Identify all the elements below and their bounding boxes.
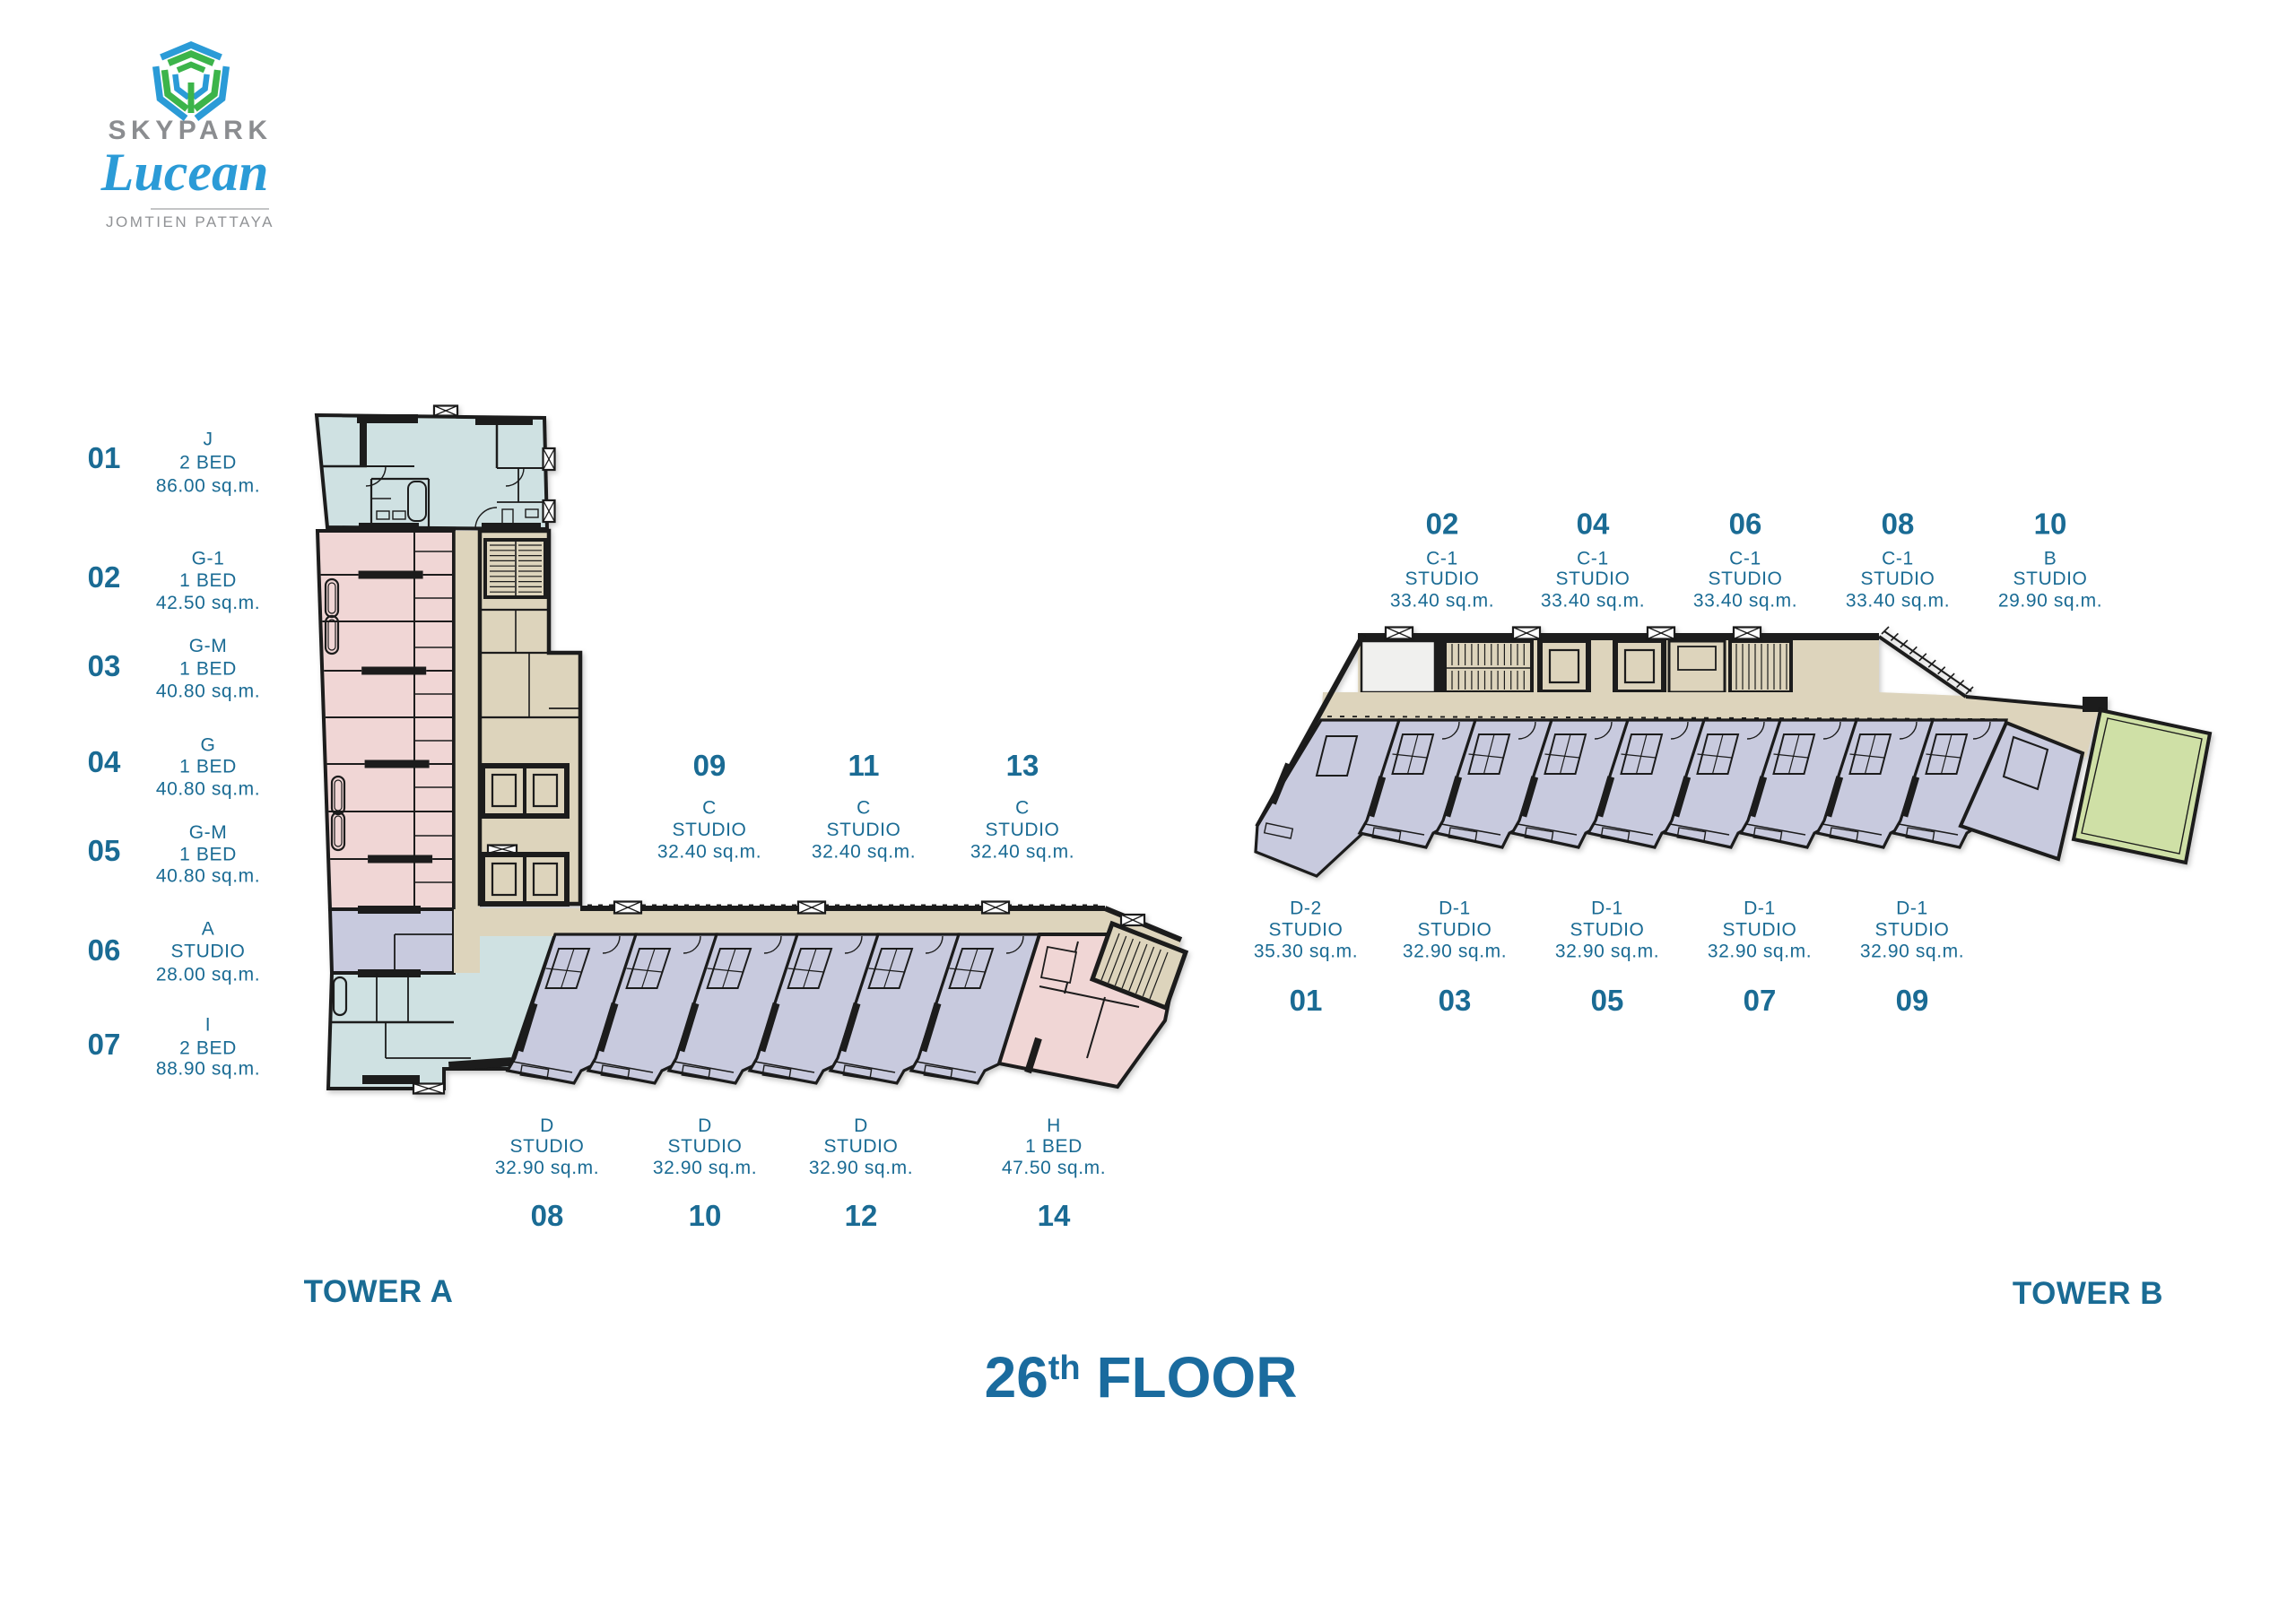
svg-text:I: I	[205, 1015, 211, 1036]
svg-text:86.00 sq.m.: 86.00 sq.m.	[156, 476, 260, 497]
svg-text:STUDIO: STUDIO	[1570, 920, 1645, 941]
svg-text:STUDIO: STUDIO	[1418, 920, 1492, 941]
svg-text:32.90 sq.m.: 32.90 sq.m.	[1708, 942, 1812, 962]
svg-text:10: 10	[689, 1199, 722, 1232]
svg-text:STUDIO: STUDIO	[1875, 920, 1950, 941]
svg-text:10: 10	[2034, 508, 2067, 541]
svg-text:07: 07	[1744, 984, 1777, 1017]
svg-text:07: 07	[88, 1028, 121, 1061]
svg-text:03: 03	[88, 649, 121, 682]
svg-text:STUDIO: STUDIO	[1861, 568, 1935, 589]
svg-text:STUDIO: STUDIO	[1269, 920, 1344, 941]
svg-text:02: 02	[1426, 508, 1459, 541]
svg-text:33.40 sq.m.: 33.40 sq.m.	[1846, 591, 1950, 612]
svg-text:13: 13	[1006, 749, 1039, 782]
svg-text:32.90 sq.m.: 32.90 sq.m.	[1403, 942, 1507, 962]
svg-text:JOMTIEN PATTAYA: JOMTIEN PATTAYA	[106, 213, 274, 230]
svg-text:C-1: C-1	[1882, 549, 1914, 569]
svg-text:1 BED: 1 BED	[179, 845, 237, 865]
svg-text:D: D	[540, 1115, 554, 1136]
svg-text:G: G	[201, 735, 216, 756]
svg-text:C-1: C-1	[1426, 549, 1458, 569]
svg-text:J: J	[203, 430, 213, 450]
svg-text:40.80 sq.m.: 40.80 sq.m.	[156, 866, 260, 887]
svg-text:40.80 sq.m.: 40.80 sq.m.	[156, 681, 260, 702]
svg-text:06: 06	[88, 933, 121, 967]
svg-text:2 BED: 2 BED	[179, 1038, 237, 1059]
svg-text:STUDIO: STUDIO	[827, 820, 901, 840]
svg-text:32.90 sq.m.: 32.90 sq.m.	[495, 1158, 599, 1178]
svg-text:SKYPARK: SKYPARK	[109, 116, 273, 145]
svg-text:88.90 sq.m.: 88.90 sq.m.	[156, 1059, 260, 1080]
svg-text:40.80 sq.m.: 40.80 sq.m.	[156, 779, 260, 800]
svg-text:09: 09	[1896, 984, 1929, 1017]
svg-text:47.50 sq.m.: 47.50 sq.m.	[1002, 1158, 1106, 1178]
svg-text:29.90 sq.m.: 29.90 sq.m.	[1998, 591, 2102, 612]
svg-text:G-M: G-M	[189, 636, 228, 656]
svg-text:B: B	[2044, 549, 2057, 569]
svg-text:D-1: D-1	[1439, 898, 1471, 919]
svg-text:42.50 sq.m.: 42.50 sq.m.	[156, 593, 260, 613]
svg-text:08: 08	[531, 1199, 564, 1232]
svg-text:C: C	[1015, 798, 1030, 819]
svg-text:D: D	[854, 1115, 868, 1136]
svg-text:H: H	[1047, 1115, 1061, 1136]
svg-text:1 BED: 1 BED	[179, 658, 237, 679]
svg-text:STUDIO: STUDIO	[986, 820, 1060, 840]
svg-text:STUDIO: STUDIO	[1405, 568, 1480, 589]
svg-text:2 BED: 2 BED	[179, 453, 237, 473]
svg-text:D-1: D-1	[1591, 898, 1623, 919]
svg-text:G-M: G-M	[189, 822, 228, 843]
svg-text:32.40 sq.m.: 32.40 sq.m.	[812, 841, 916, 862]
svg-text:32.90 sq.m.: 32.90 sq.m.	[653, 1158, 757, 1178]
svg-text:C: C	[702, 798, 717, 819]
svg-text:D-2: D-2	[1290, 898, 1322, 919]
svg-text:STUDIO: STUDIO	[668, 1136, 743, 1157]
svg-text:STUDIO: STUDIO	[1723, 920, 1797, 941]
svg-text:C: C	[857, 798, 871, 819]
svg-text:32.90 sq.m.: 32.90 sq.m.	[809, 1158, 913, 1178]
svg-text:STUDIO: STUDIO	[1556, 568, 1631, 589]
svg-text:STUDIO: STUDIO	[673, 820, 747, 840]
svg-text:08: 08	[1882, 508, 1915, 541]
svg-text:32.40 sq.m.: 32.40 sq.m.	[657, 841, 761, 862]
svg-text:11: 11	[848, 749, 880, 782]
svg-text:TOWER A: TOWER A	[304, 1274, 454, 1309]
svg-text:1 BED: 1 BED	[179, 757, 237, 777]
svg-text:STUDIO: STUDIO	[510, 1136, 585, 1157]
svg-text:02: 02	[88, 560, 121, 594]
svg-text:26th FLOOR: 26th FLOOR	[985, 1345, 1298, 1410]
svg-text:04: 04	[88, 745, 121, 778]
svg-text:Lucean: Lucean	[100, 143, 269, 202]
svg-text:33.40 sq.m.: 33.40 sq.m.	[1390, 591, 1494, 612]
svg-text:C-1: C-1	[1729, 549, 1761, 569]
svg-text:28.00 sq.m.: 28.00 sq.m.	[156, 965, 260, 985]
svg-text:A: A	[202, 919, 215, 940]
svg-text:14: 14	[1038, 1199, 1071, 1232]
svg-text:1 BED: 1 BED	[1025, 1136, 1083, 1157]
svg-text:33.40 sq.m.: 33.40 sq.m.	[1541, 591, 1645, 612]
svg-text:32.90 sq.m.: 32.90 sq.m.	[1555, 942, 1659, 962]
svg-text:STUDIO: STUDIO	[171, 942, 246, 962]
svg-text:TOWER B: TOWER B	[2013, 1276, 2163, 1311]
svg-text:01: 01	[88, 441, 121, 474]
svg-text:05: 05	[1591, 984, 1624, 1017]
svg-text:09: 09	[693, 749, 726, 782]
svg-text:STUDIO: STUDIO	[824, 1136, 899, 1157]
svg-text:STUDIO: STUDIO	[1709, 568, 1783, 589]
svg-text:05: 05	[88, 834, 121, 867]
svg-text:C-1: C-1	[1577, 549, 1609, 569]
svg-text:04: 04	[1577, 508, 1610, 541]
svg-text:D-1: D-1	[1896, 898, 1928, 919]
svg-text:STUDIO: STUDIO	[2013, 568, 2088, 589]
svg-text:33.40 sq.m.: 33.40 sq.m.	[1693, 591, 1797, 612]
svg-text:32.90 sq.m.: 32.90 sq.m.	[1860, 942, 1964, 962]
svg-text:06: 06	[1729, 508, 1762, 541]
svg-text:D-1: D-1	[1744, 898, 1776, 919]
svg-text:D: D	[698, 1115, 712, 1136]
svg-text:12: 12	[845, 1199, 878, 1232]
svg-text:1 BED: 1 BED	[179, 570, 237, 591]
svg-text:03: 03	[1439, 984, 1472, 1017]
svg-text:01: 01	[1290, 984, 1323, 1017]
svg-text:G-1: G-1	[192, 549, 225, 569]
svg-text:32.40 sq.m.: 32.40 sq.m.	[970, 841, 1074, 862]
svg-text:35.30 sq.m.: 35.30 sq.m.	[1254, 942, 1358, 962]
